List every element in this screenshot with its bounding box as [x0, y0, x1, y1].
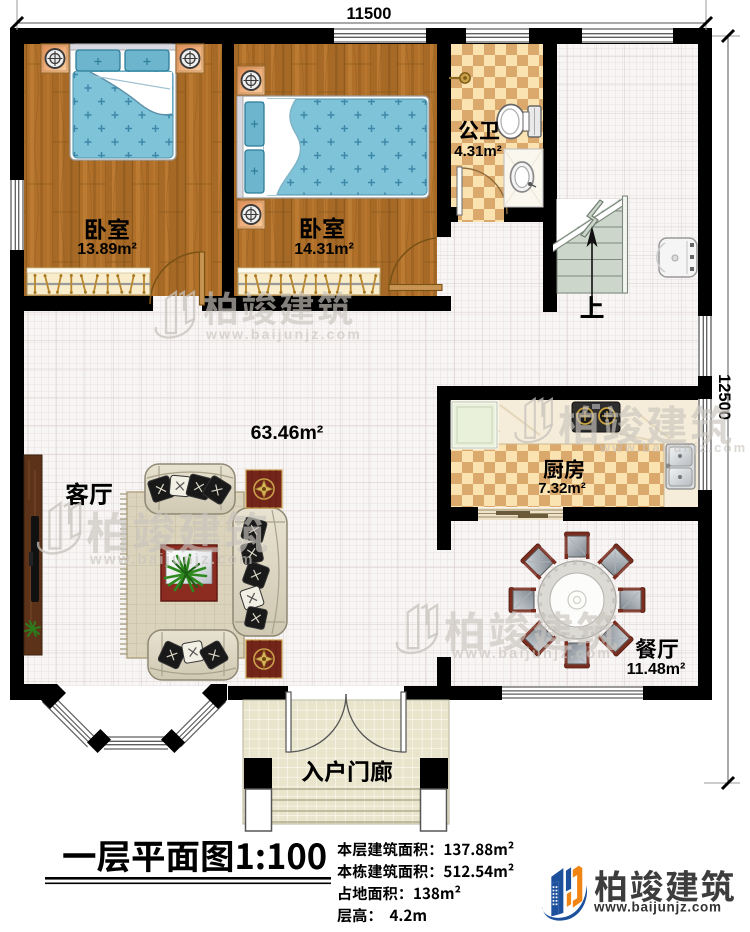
svg-text:14.31m²: 14.31m²	[294, 241, 354, 258]
svg-text:www.baijunjz.com: www.baijunjz.com	[599, 440, 747, 455]
svg-text:www.baijunjz.com: www.baijunjz.com	[205, 326, 362, 342]
svg-text:11500: 11500	[347, 5, 392, 23]
svg-text:7.32m²: 7.32m²	[538, 480, 586, 497]
svg-text:11.48m²: 11.48m²	[627, 661, 686, 678]
svg-text:www.baijunjz.com: www.baijunjz.com	[451, 646, 612, 662]
svg-text:www.baijunjz.com: www.baijunjz.com	[593, 900, 722, 915]
svg-text:4.31m²: 4.31m²	[454, 143, 502, 160]
svg-text:63.46m²: 63.46m²	[251, 422, 324, 444]
svg-text:www.baijunjz.com: www.baijunjz.com	[89, 551, 255, 568]
svg-text:13.89m²: 13.89m²	[77, 241, 137, 258]
